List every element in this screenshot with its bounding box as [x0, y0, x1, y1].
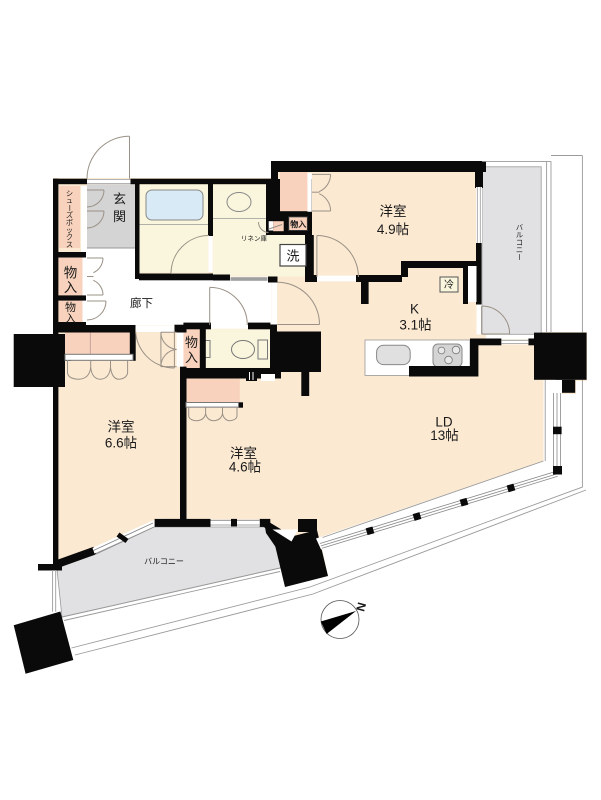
- svg-text:4.6帖: 4.6帖: [229, 460, 261, 475]
- svg-text:物: 物: [65, 300, 76, 314]
- svg-text:バルコニー: バルコニー: [144, 557, 184, 566]
- svg-text:洗: 洗: [286, 249, 299, 264]
- svg-text:廊下: 廊下: [130, 296, 153, 310]
- svg-text:6.6帖: 6.6帖: [105, 436, 137, 451]
- svg-text:洋室: 洋室: [108, 419, 135, 435]
- svg-text:リネン庫: リネン庫: [241, 234, 268, 243]
- svg-text:3.1帖: 3.1帖: [399, 318, 431, 333]
- svg-text:物入: 物入: [290, 219, 306, 229]
- svg-text:入: 入: [65, 313, 76, 325]
- svg-text:ー: ー: [515, 253, 524, 260]
- svg-text:玄: 玄: [113, 192, 126, 207]
- svg-text:ス: ス: [66, 240, 73, 249]
- svg-text:入: 入: [185, 350, 198, 365]
- svg-text:4.9帖: 4.9帖: [377, 222, 409, 237]
- svg-text:冷: 冷: [444, 278, 454, 291]
- svg-text:入: 入: [64, 280, 78, 295]
- svg-text:物: 物: [185, 335, 198, 350]
- svg-text:関: 関: [113, 209, 126, 224]
- svg-text:13帖: 13帖: [430, 428, 459, 443]
- svg-text:洋室: 洋室: [380, 203, 407, 219]
- svg-text:物: 物: [64, 266, 78, 281]
- svg-text:K: K: [410, 302, 419, 317]
